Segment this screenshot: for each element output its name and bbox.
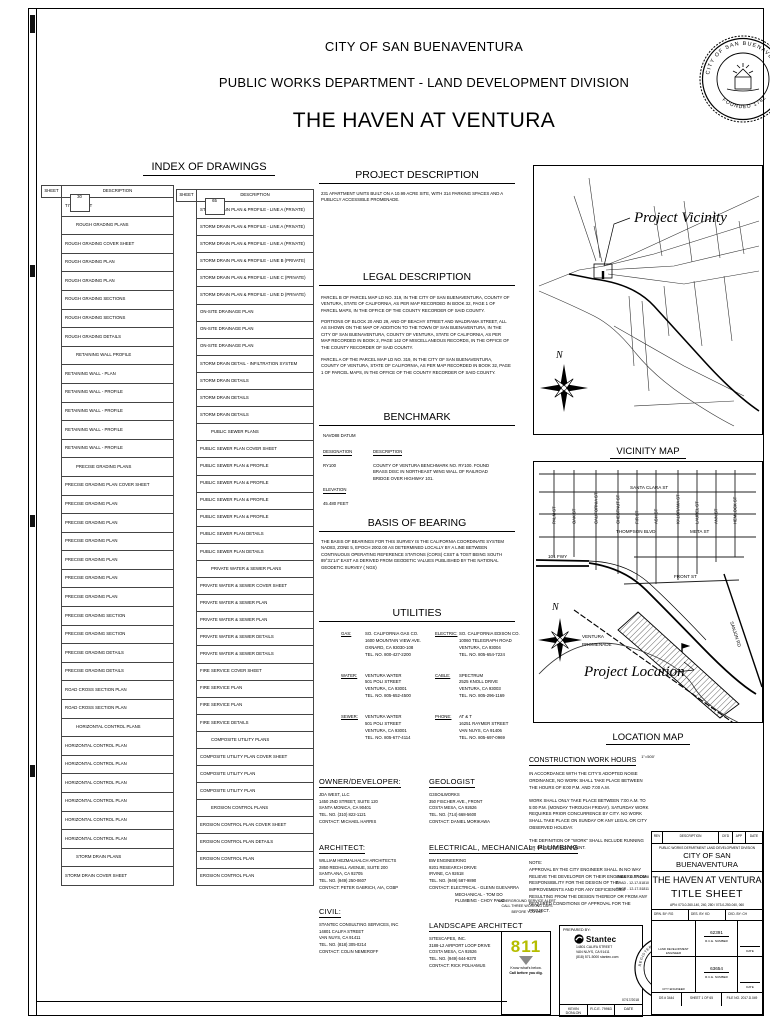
index-sheet-row: 25HORIZONTAL CONTROL PLAN: [42, 755, 174, 774]
index-sheet-row: 15PRECISE GRADING PLAN: [42, 514, 174, 533]
index-sheet-row: 9RETAINING WALL - PROFILE: [42, 383, 174, 402]
street-label: LAUREL ST: [695, 501, 700, 524]
legal-paragraph: PARCEL A OF THE PARCEL MAP LD NO. 319, I…: [321, 357, 511, 376]
index-sheet-row: 7ROUGH GRADING DETAILS: [42, 328, 174, 347]
project-description-body: 231 APARTMENT UNITS BUILT ON A 10.99 ACR…: [321, 191, 507, 204]
index-sheet-row: 3ROUGH GRADING PLAN: [42, 253, 174, 272]
stantec-mark-icon: [574, 934, 584, 944]
benchmark-description: COUNTY OF VENTURA BENCHMARK NO. RY100. F…: [373, 463, 499, 482]
drafting-credits-row: DRN. BY: RG DES. BY: KD CKD. BY: CH: [652, 910, 762, 921]
contact-block: ARCHITECT:WILLIAM HEZMALHALCH ARCHITECTS…: [319, 837, 425, 892]
index-sheet-row: 51PRIVATE WATER & SEWER PLAN: [177, 595, 314, 612]
index-sheet-row: 8RETAINING WALL - PLAN: [42, 365, 174, 384]
contact-block: CIVIL:STANTEC CONSULTING SERVICES, INC14…: [319, 901, 425, 956]
811-number: 811: [502, 938, 550, 955]
index-sheet-row: 60COMPOSITE UTILITY PLAN: [177, 766, 314, 783]
legal-paragraph: PORTIONS OF BLOCK 20 AND 29, AND OF BEAC…: [321, 319, 511, 351]
index-section-row: EROSION CONTROL PLANS: [177, 800, 314, 817]
index-table-left: SHEET DESCRIPTION 1TITLE SHEETROUGH GRAD…: [41, 185, 174, 886]
index-sheet-row: 57FIRE SERVICE PLAN: [177, 697, 314, 714]
prepared-signature-row: KEVIN DONLON R.C.E. 79963 DATE: [560, 1004, 642, 1016]
index-sheet-row: 41STORM DRAIN DETAILS: [177, 372, 314, 389]
index-sheet-row: 16PRECISE GRADING PLAN: [42, 532, 174, 551]
index-sheet-row: 47PUBLIC SEWER PLAN & PROFILE: [177, 492, 314, 509]
utility-entry: SEWER:VENTURA WATER501 POLI STREETVENTUR…: [341, 714, 429, 742]
vicinity-callout: Project Vicinity: [633, 210, 727, 226]
index-sheet-row: 61COMPOSITE UTILITY PLAN: [177, 783, 314, 800]
street-label: HEMLOCK ST: [733, 496, 738, 524]
street-label: PROMENADE: [582, 642, 612, 647]
index-sheet-row: 29HORIZONTAL CONTROL PLAN: [42, 830, 174, 849]
benchmark-designation: RY100: [323, 463, 336, 469]
index-sheet-row: 63EROSION CONTROL PLAN DETAILS: [177, 834, 314, 851]
contact-title: ARCHITECT:: [319, 843, 365, 854]
index-sheet-row: 54PRIVATE WATER & SEWER DETAILS: [177, 646, 314, 663]
index-sheet-row: 52PRIVATE WATER & SEWER PLAN: [177, 612, 314, 629]
index-section-row: STORM DRAIN PLANS: [42, 848, 174, 867]
index-col-sheet: SHEET: [177, 190, 197, 202]
legal-description-title: LEGAL DESCRIPTION: [319, 271, 515, 286]
index-sheet-row: 23BROAD CROSS SECTION PLAN: [42, 700, 174, 719]
index-sheet-row: 18PRECISE GRADING PLAN: [42, 569, 174, 588]
index-sheet-row: 36STORM DRAIN PLAN & PROFILE - LINE D (P…: [177, 287, 314, 304]
location-north-label: N: [551, 602, 560, 613]
utility-entry: PHONE:AT & T16251 RAYMER STREETVAN NUYS,…: [435, 714, 523, 742]
vicinity-map: Project Vicinity N: [533, 165, 763, 435]
drawing-sheet: CITY OF SAN BUENAVENTURA PUBLIC WORKS DE…: [28, 8, 764, 1016]
index-sheet-row: 55FIRE SERVICE COVER SHEET: [177, 663, 314, 680]
signature-row-land-dev: LAND DEVELOPMENT ENGINEER 62391 R.C.E. N…: [652, 921, 762, 957]
index-sheet-row: 5ROUGH GRADING SECTIONS: [42, 290, 174, 309]
index-sheet-row: 13PRECISE GRADING PLAN COVER SHEET: [42, 476, 174, 495]
index-sheet-row: 43STORM DRAIN DETAILS: [177, 407, 314, 424]
contact-title: GEOLOGIST: [429, 777, 475, 788]
index-sheet-row: 6ROUGH GRADING SECTIONS: [42, 309, 174, 328]
index-sheet-row: 46PUBLIC SEWER PLAN & PROFILE: [177, 475, 314, 492]
index-sheet-row: 40STORM DRAIN DETAIL - INFILTRATION SYST…: [177, 355, 314, 372]
index-sheet-row: 4ROUGH GRADING PLAN: [42, 272, 174, 291]
permit-numbers: GRAN - 12-17-42298 GRAD - 12-17-51810 EN…: [579, 875, 649, 893]
basis-of-bearing-body: THE BASIS OF BEARINGS FOR THIS SURVEY IS…: [321, 539, 511, 571]
basis-of-bearing-title: BASIS OF BEARING: [319, 517, 515, 532]
vicinity-map-title: VICINITY MAP: [610, 446, 685, 459]
titleblock-footer-row: DS # 3444 SHEET 1 OF 65 FILE NO. 2017.D.…: [652, 993, 762, 1006]
index-sheet-row: 45PUBLIC SEWER PLAN & PROFILE: [177, 458, 314, 475]
titleblock-project: THE HAVEN AT VENTURA: [652, 872, 762, 885]
street-label: FRONT ST: [674, 574, 697, 579]
titleblock-apn: APN: 073-0-260-140, 240, 280 / 073-0-250…: [652, 900, 762, 910]
index-sheet-row: 30STORM DRAIN COVER SHEET: [42, 867, 174, 886]
index-section-row: COMPOSITE UTILITY PLANS: [177, 731, 314, 748]
index-sheet-row: 53PRIVATE WATER & SEWER DETAILS: [177, 629, 314, 646]
index-sheet-row: 14PRECISE GRADING PLAN: [42, 495, 174, 514]
revision-header-row: REV DESCRIPTION CK'D APP DATE: [651, 831, 763, 843]
location-callout: Project Location: [583, 664, 685, 680]
index-sheet-row: 59COMPOSITE UTILITY PLAN COVER SHEET: [177, 749, 314, 766]
index-sheet-row: 42STORM DRAIN DETAILS: [177, 390, 314, 407]
contact-lines: WILLIAM HEZMALHALCH ARCHITECTS2850 REDHI…: [319, 858, 425, 892]
index-sheet-row: 33STORM DRAIN PLAN & PROFILE - LINE A (P…: [177, 236, 314, 253]
benchmark-elevation-label: ELEVATION: [323, 487, 346, 494]
index-sheet-row: 32STORM DRAIN PLAN & PROFILE - LINE A (P…: [177, 219, 314, 236]
index-sheet-row: 11RETAINING WALL - PROFILE: [42, 421, 174, 440]
index-sheet-row: 31STORM DRAIN PLAN & PROFILE - LINE A (P…: [177, 202, 314, 219]
street-label: KALORAMA ST: [676, 494, 681, 524]
street-label: ASH ST: [654, 508, 659, 524]
index-sheet-row: 22PRECISE GRADING DETAILS: [42, 644, 174, 663]
index-sheet-row: 17PRECISE GRADING PLAN: [42, 551, 174, 570]
index-sheet-row: 26HORIZONTAL CONTROL PLAN: [42, 774, 174, 793]
call-811-logo: 811 Know what's below. Call before you d…: [501, 931, 551, 1015]
contact-lines: JDA WEST, LLC1450 2ND STREET, SUITE 120S…: [319, 792, 425, 826]
index-table-right: SHEET DESCRIPTION 31STORM DRAIN PLAN & P…: [176, 189, 314, 886]
utility-entry: CABLE:SPECTRUM2525 KNOLL DRIVEVENTURA, C…: [435, 673, 523, 701]
cwh-paragraph: WORK SHALL ONLY TAKE PLACE BETWEEN 7:00 …: [529, 798, 649, 832]
cwh-paragraph: IN ACCORDANCE WITH THE CITY'S ADOPTED NO…: [529, 771, 649, 792]
street-label: OAK ST: [572, 508, 577, 524]
index-section-row: RETAINING WALL PROFILE: [42, 346, 174, 365]
index-sheet-row: 2ROUGH GRADING COVER SHEET: [42, 235, 174, 254]
index-sheet-row: 28HORIZONTAL CONTROL PLAN: [42, 811, 174, 830]
index-sheet-row: 34STORM DRAIN PLAN & PROFILE - LINE B (P…: [177, 253, 314, 270]
construction-work-hours-title: CONSTRUCTION WORK HOURS: [529, 757, 636, 766]
index-sheet-row: 37ON-SITE DRAINAGE PLAN: [177, 304, 314, 321]
index-sheet-row: 21PRECISE GRADING SECTION: [42, 625, 174, 644]
utilities-left-column: GAS:SO. CALIFORNIA GAS CO.1600 MOUNTAIN …: [341, 631, 429, 756]
header-city: CITY OF SAN BUENAVENTURA: [189, 39, 659, 54]
utility-entry: GAS:SO. CALIFORNIA GAS CO.1600 MOUNTAIN …: [341, 631, 429, 659]
index-sheet-row: 1TITLE SHEET: [42, 198, 174, 217]
index-sheet-row: 12RETAINING WALL - PROFILE: [42, 439, 174, 458]
index-section-row: PRIVATE WATER & SEWER PLANS: [177, 560, 314, 577]
street-label: SANTA CLARA ST: [630, 485, 668, 490]
street-label: PALM ST: [552, 506, 557, 524]
project-description-title: PROJECT DESCRIPTION: [319, 169, 515, 184]
index-section-row: HORIZONTAL CONTROL PLANS: [42, 718, 174, 737]
location-map: SANTA CLARA ST THOMPSON BLVD META ST FRO…: [533, 461, 763, 723]
benchmark-elevation: 45.480 FEET: [323, 501, 348, 507]
svg-text:FOUNDED 1782: FOUNDED 1782: [721, 95, 768, 111]
street-label: CHESTNUT ST: [616, 494, 621, 524]
street-label: THOMPSON BLVD: [616, 529, 656, 534]
index-sheet-row: 64EROSION CONTROL PLAN: [177, 851, 314, 868]
utilities-title: UTILITIES: [319, 607, 515, 622]
benchmark-datum: NAVD88 DATUM: [323, 433, 356, 439]
utility-entry: WATER:VENTURA WATER501 POLI STREETVENTUR…: [341, 673, 429, 701]
vicinity-north-label: N: [555, 350, 564, 361]
index-sheet-row: 39ON-SITE DRAINAGE PLAN: [177, 338, 314, 355]
index-sheet-row: 10RETAINING WALL - PROFILE: [42, 402, 174, 421]
index-sheet-row: 27HORIZONTAL CONTROL PLAN: [42, 793, 174, 812]
benchmark-title: BENCHMARK: [319, 411, 515, 426]
stantec-logo: Stantec: [560, 932, 642, 945]
titleblock-sheet-title: TITLE SHEET: [652, 885, 762, 900]
benchmark-description-label: DESCRIPTION: [373, 449, 402, 456]
header-department: PUBLIC WORKS DEPARTMENT - LAND DEVELOPME…: [129, 75, 719, 90]
street-label: FIR ST: [635, 510, 640, 524]
location-map-art: SANTA CLARA ST THOMPSON BLVD META ST FRO…: [534, 462, 762, 722]
index-sheet-row: 23PRECISE GRADING DETAILS: [42, 662, 174, 681]
index-sheet-row: 38ON-SITE DRAINAGE PLAN: [177, 321, 314, 338]
signature-row-city-eng: CITY ENGINEER 63654 R.C.E. NUMBER DATE: [652, 957, 762, 993]
street-label: CALIFORNIA ST: [594, 492, 599, 524]
index-sheet-row: 23AROAD CROSS SECTION PLAN: [42, 681, 174, 700]
index-sheet-row: 65EROSION CONTROL PLAN: [177, 868, 314, 885]
contact-lines: STANTEC CONSULTING SERVICES, INC14801 CA…: [319, 922, 425, 956]
utility-entry: ELECTRIC:SO. CALIFORNIA EDISON CO.10060 …: [435, 631, 523, 659]
index-sheet-row: 49PUBLIC SEWER PLAN DETAILS: [177, 526, 314, 543]
underground-service-alert: UNDERGROUND SERVICE ALERT CALL THREE WOR…: [481, 899, 573, 915]
811-arrow-icon: [519, 956, 533, 965]
index-title: INDEX OF DRAWINGS: [143, 161, 274, 176]
index-sheet-row: 19PRECISE GRADING PLAN: [42, 588, 174, 607]
city-seal: CITY OF SAN BUENAVENTURA FOUNDED 1782: [697, 33, 770, 125]
index-sheet-row: 48PUBLIC SEWER PLAN & PROFILE: [177, 509, 314, 526]
index-sheet-row: 20PRECISE GRADING SECTION: [42, 607, 174, 626]
811-tagline: Know what's below. Call before you dig.: [502, 966, 550, 976]
seal-mission-art: [727, 63, 759, 91]
engineer-rce: R.C.E. 79963: [588, 1005, 616, 1016]
index-sheet-row: 58FIRE SERVICE DETAILS: [177, 714, 314, 731]
index-section-row: ROUGH GRADING PLANS: [42, 216, 174, 235]
street-label: 101 FWY: [548, 554, 567, 559]
index-sheet-row: 56FIRE SERVICE PLAN: [177, 680, 314, 697]
engineer-name: KEVIN DONLON: [560, 1005, 588, 1016]
index-sheet-row: 35STORM DRAIN PLAN & PROFILE - LINE C (P…: [177, 270, 314, 287]
compass-rose: [540, 364, 588, 412]
seal-ring-bottom: FOUNDED 1782: [721, 95, 768, 111]
street-label: VENTURA: [582, 634, 605, 639]
contact-title: CIVIL:: [319, 907, 341, 918]
index-section-row: PRECISE GRADING PLANS: [42, 458, 174, 477]
legal-paragraph: PARCEL B OF PARCEL MAP LD NO. 319, IN TH…: [321, 295, 511, 314]
titleblock-dept-line: PUBLIC WORKS DEPARTMENT LAND DEVELOPMENT…: [652, 844, 762, 850]
title-block: PUBLIC WORKS DEPARTMENT LAND DEVELOPMENT…: [651, 843, 763, 1015]
index-sheet-row: 49APUBLIC SEWER PLAN DETAILS: [177, 543, 314, 560]
index-sheet-row: 44PUBLIC SEWER PLAN COVER SHEET: [177, 441, 314, 458]
index-section-row: PUBLIC SEWER PLANS: [177, 424, 314, 441]
contact-block: OWNER/DEVELOPER:JDA WEST, LLC1450 2ND ST…: [319, 771, 425, 826]
location-map-title: LOCATION MAP: [606, 732, 689, 745]
cwh-paragraph: THE DEFINITION OF "WORK" SHALL INCLUDE R…: [529, 838, 649, 852]
prepared-by-address: 14801 CALIFA STREET VAN NUYS, CA 91411 (…: [560, 945, 642, 960]
index-sheet-row: 24HORIZONTAL CONTROL PLAN: [42, 737, 174, 756]
footer-divider: [37, 1001, 507, 1002]
page-title: THE HAVEN AT VENTURA: [189, 109, 659, 133]
date-label: DATE: [615, 1005, 642, 1016]
index-sheet-row: 50PRIVATE WATER & SEWER COVER SHEET: [177, 578, 314, 595]
titleblock-agency: CITY OF SAN BUENAVENTURA: [652, 850, 762, 872]
index-title-wrap: INDEX OF DRAWINGS: [99, 157, 319, 175]
street-label: ANN ST: [714, 508, 719, 524]
vicinity-map-art: Project Vicinity N: [534, 166, 762, 434]
utilities-right-column: ELECTRIC:SO. CALIFORNIA EDISON CO.10060 …: [435, 631, 523, 756]
street-label: META ST: [690, 529, 710, 534]
benchmark-designation-label: DESIGNATION: [323, 449, 352, 456]
street-label: SANJON RD: [729, 621, 742, 648]
index-col-sheet: SHEET: [42, 186, 62, 198]
contact-title: OWNER/DEVELOPER:: [319, 777, 401, 788]
prepared-by-block: PREPARED BY: Stantec 14801 CALIFA STREET…: [559, 925, 643, 1017]
binding-margin: [29, 9, 37, 1015]
compass-rose: [538, 618, 582, 662]
cwh-note-label: NOTE:: [529, 860, 649, 867]
index-sheet-row: 62EROSION CONTROL PLAN COVER SHEET: [177, 817, 314, 834]
